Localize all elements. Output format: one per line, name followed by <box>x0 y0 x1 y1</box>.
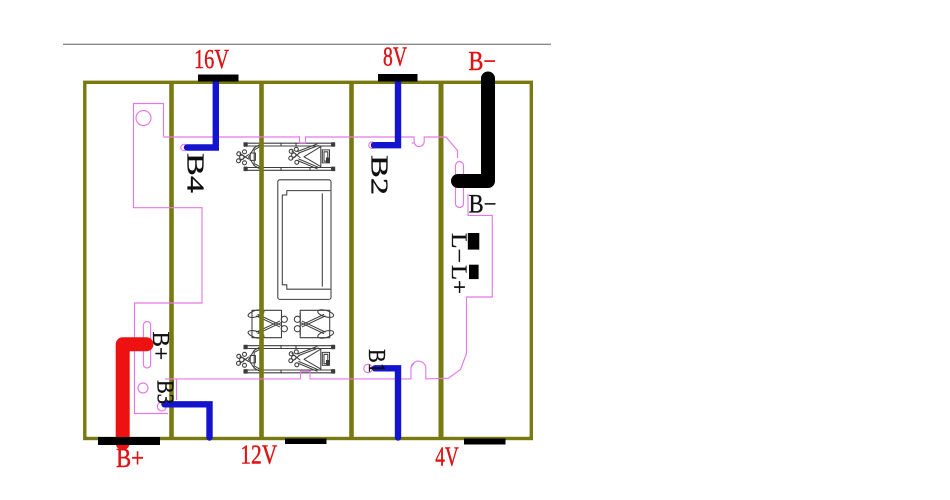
svg-text:8V: 8V <box>383 41 407 71</box>
svg-text:L−: L− <box>447 233 472 263</box>
svg-text:B2: B2 <box>366 155 392 195</box>
svg-text:B+: B+ <box>116 443 144 473</box>
svg-text:B−: B− <box>469 46 497 76</box>
svg-text:12V: 12V <box>240 439 277 469</box>
svg-text:16V: 16V <box>194 44 229 74</box>
svg-text:4V: 4V <box>435 442 459 472</box>
svg-text:L+: L+ <box>447 265 472 294</box>
svg-text:B−: B− <box>469 189 497 218</box>
svg-text:B+: B+ <box>147 332 173 361</box>
svg-text:B3: B3 <box>152 380 178 404</box>
svg-text:B4: B4 <box>182 153 208 193</box>
svg-text:B1: B1 <box>363 349 389 373</box>
